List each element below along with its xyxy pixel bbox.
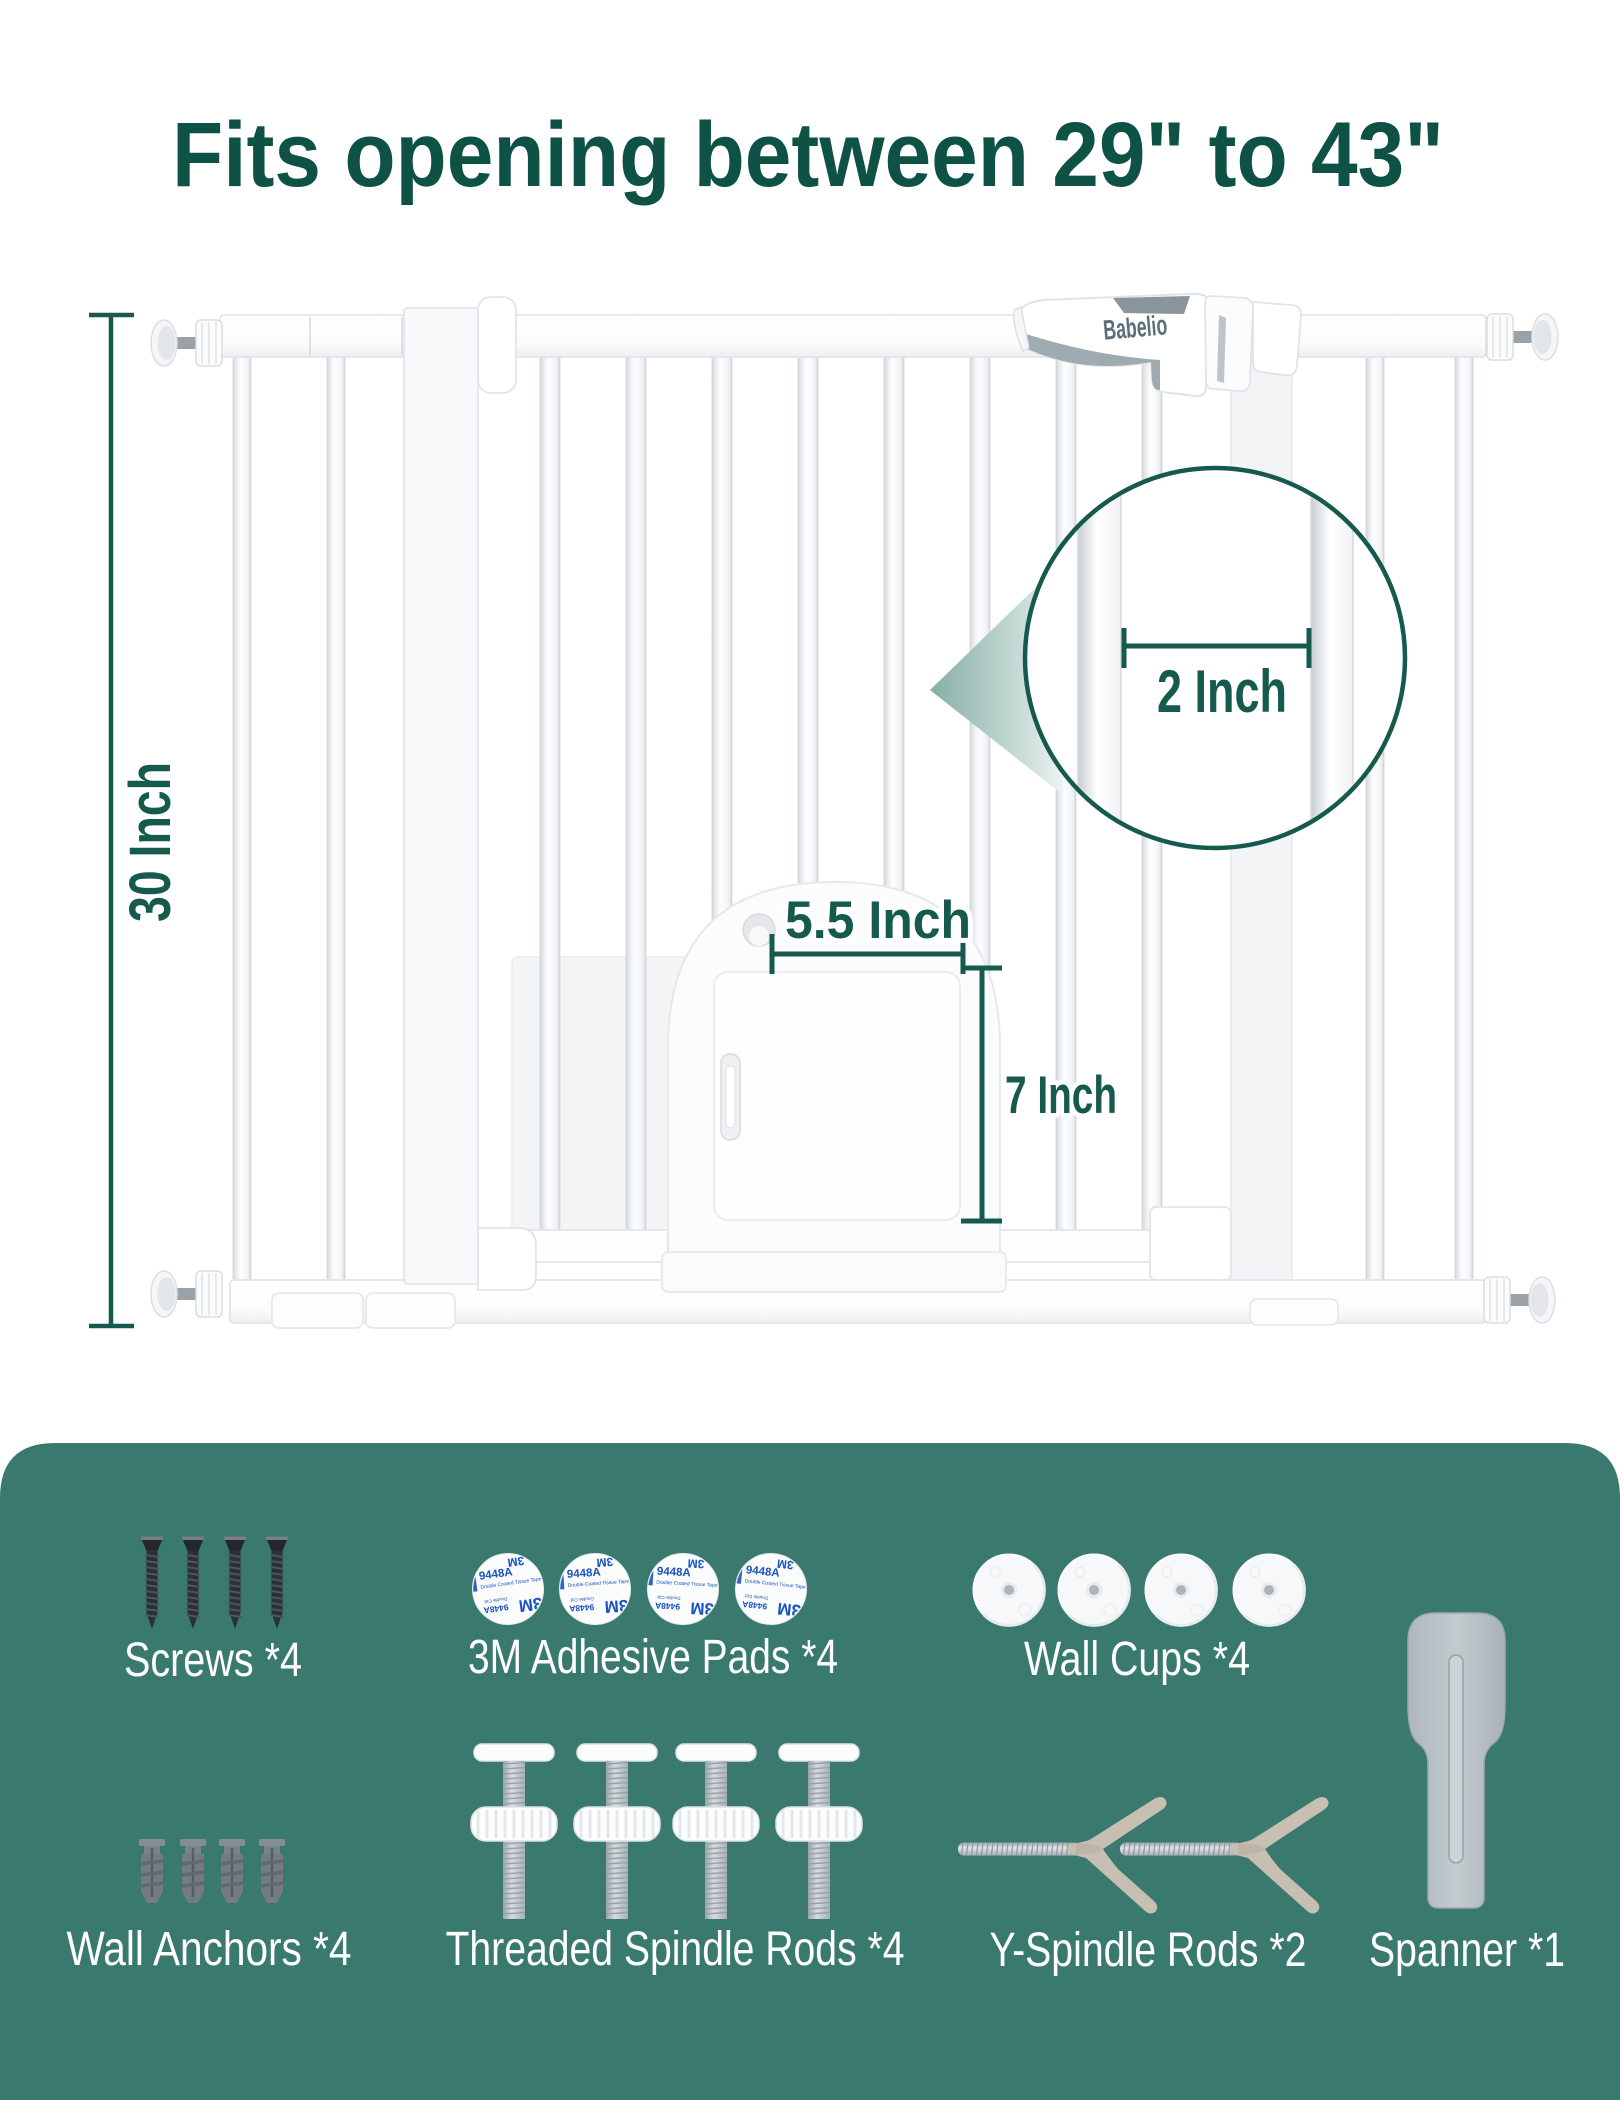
svg-text:Screws *4: Screws *4 [124, 1634, 302, 1687]
svg-text:Spanner *1: Spanner *1 [1369, 1924, 1565, 1977]
svg-text:Wall Anchors *4: Wall Anchors *4 [67, 1923, 352, 1976]
svg-text:30 Inch: 30 Inch [118, 762, 183, 922]
svg-text:Wall Cups *4: Wall Cups *4 [1024, 1633, 1250, 1686]
svg-text:3M Adhesive Pads *4: 3M Adhesive Pads *4 [468, 1631, 838, 1684]
svg-text:Y-Spindle Rods *2: Y-Spindle Rods *2 [990, 1924, 1307, 1977]
svg-text:2 Inch: 2 Inch [1157, 658, 1287, 725]
svg-text:5.5 Inch: 5.5 Inch [785, 891, 971, 950]
svg-text:7 Inch: 7 Inch [1005, 1066, 1117, 1125]
svg-text:Threaded Spindle Rods *4: Threaded Spindle Rods *4 [446, 1923, 905, 1976]
svg-text:Babelio: Babelio [1102, 309, 1168, 345]
svg-text:Fits opening between 29" to 43: Fits opening between 29" to 43" [172, 104, 1444, 206]
